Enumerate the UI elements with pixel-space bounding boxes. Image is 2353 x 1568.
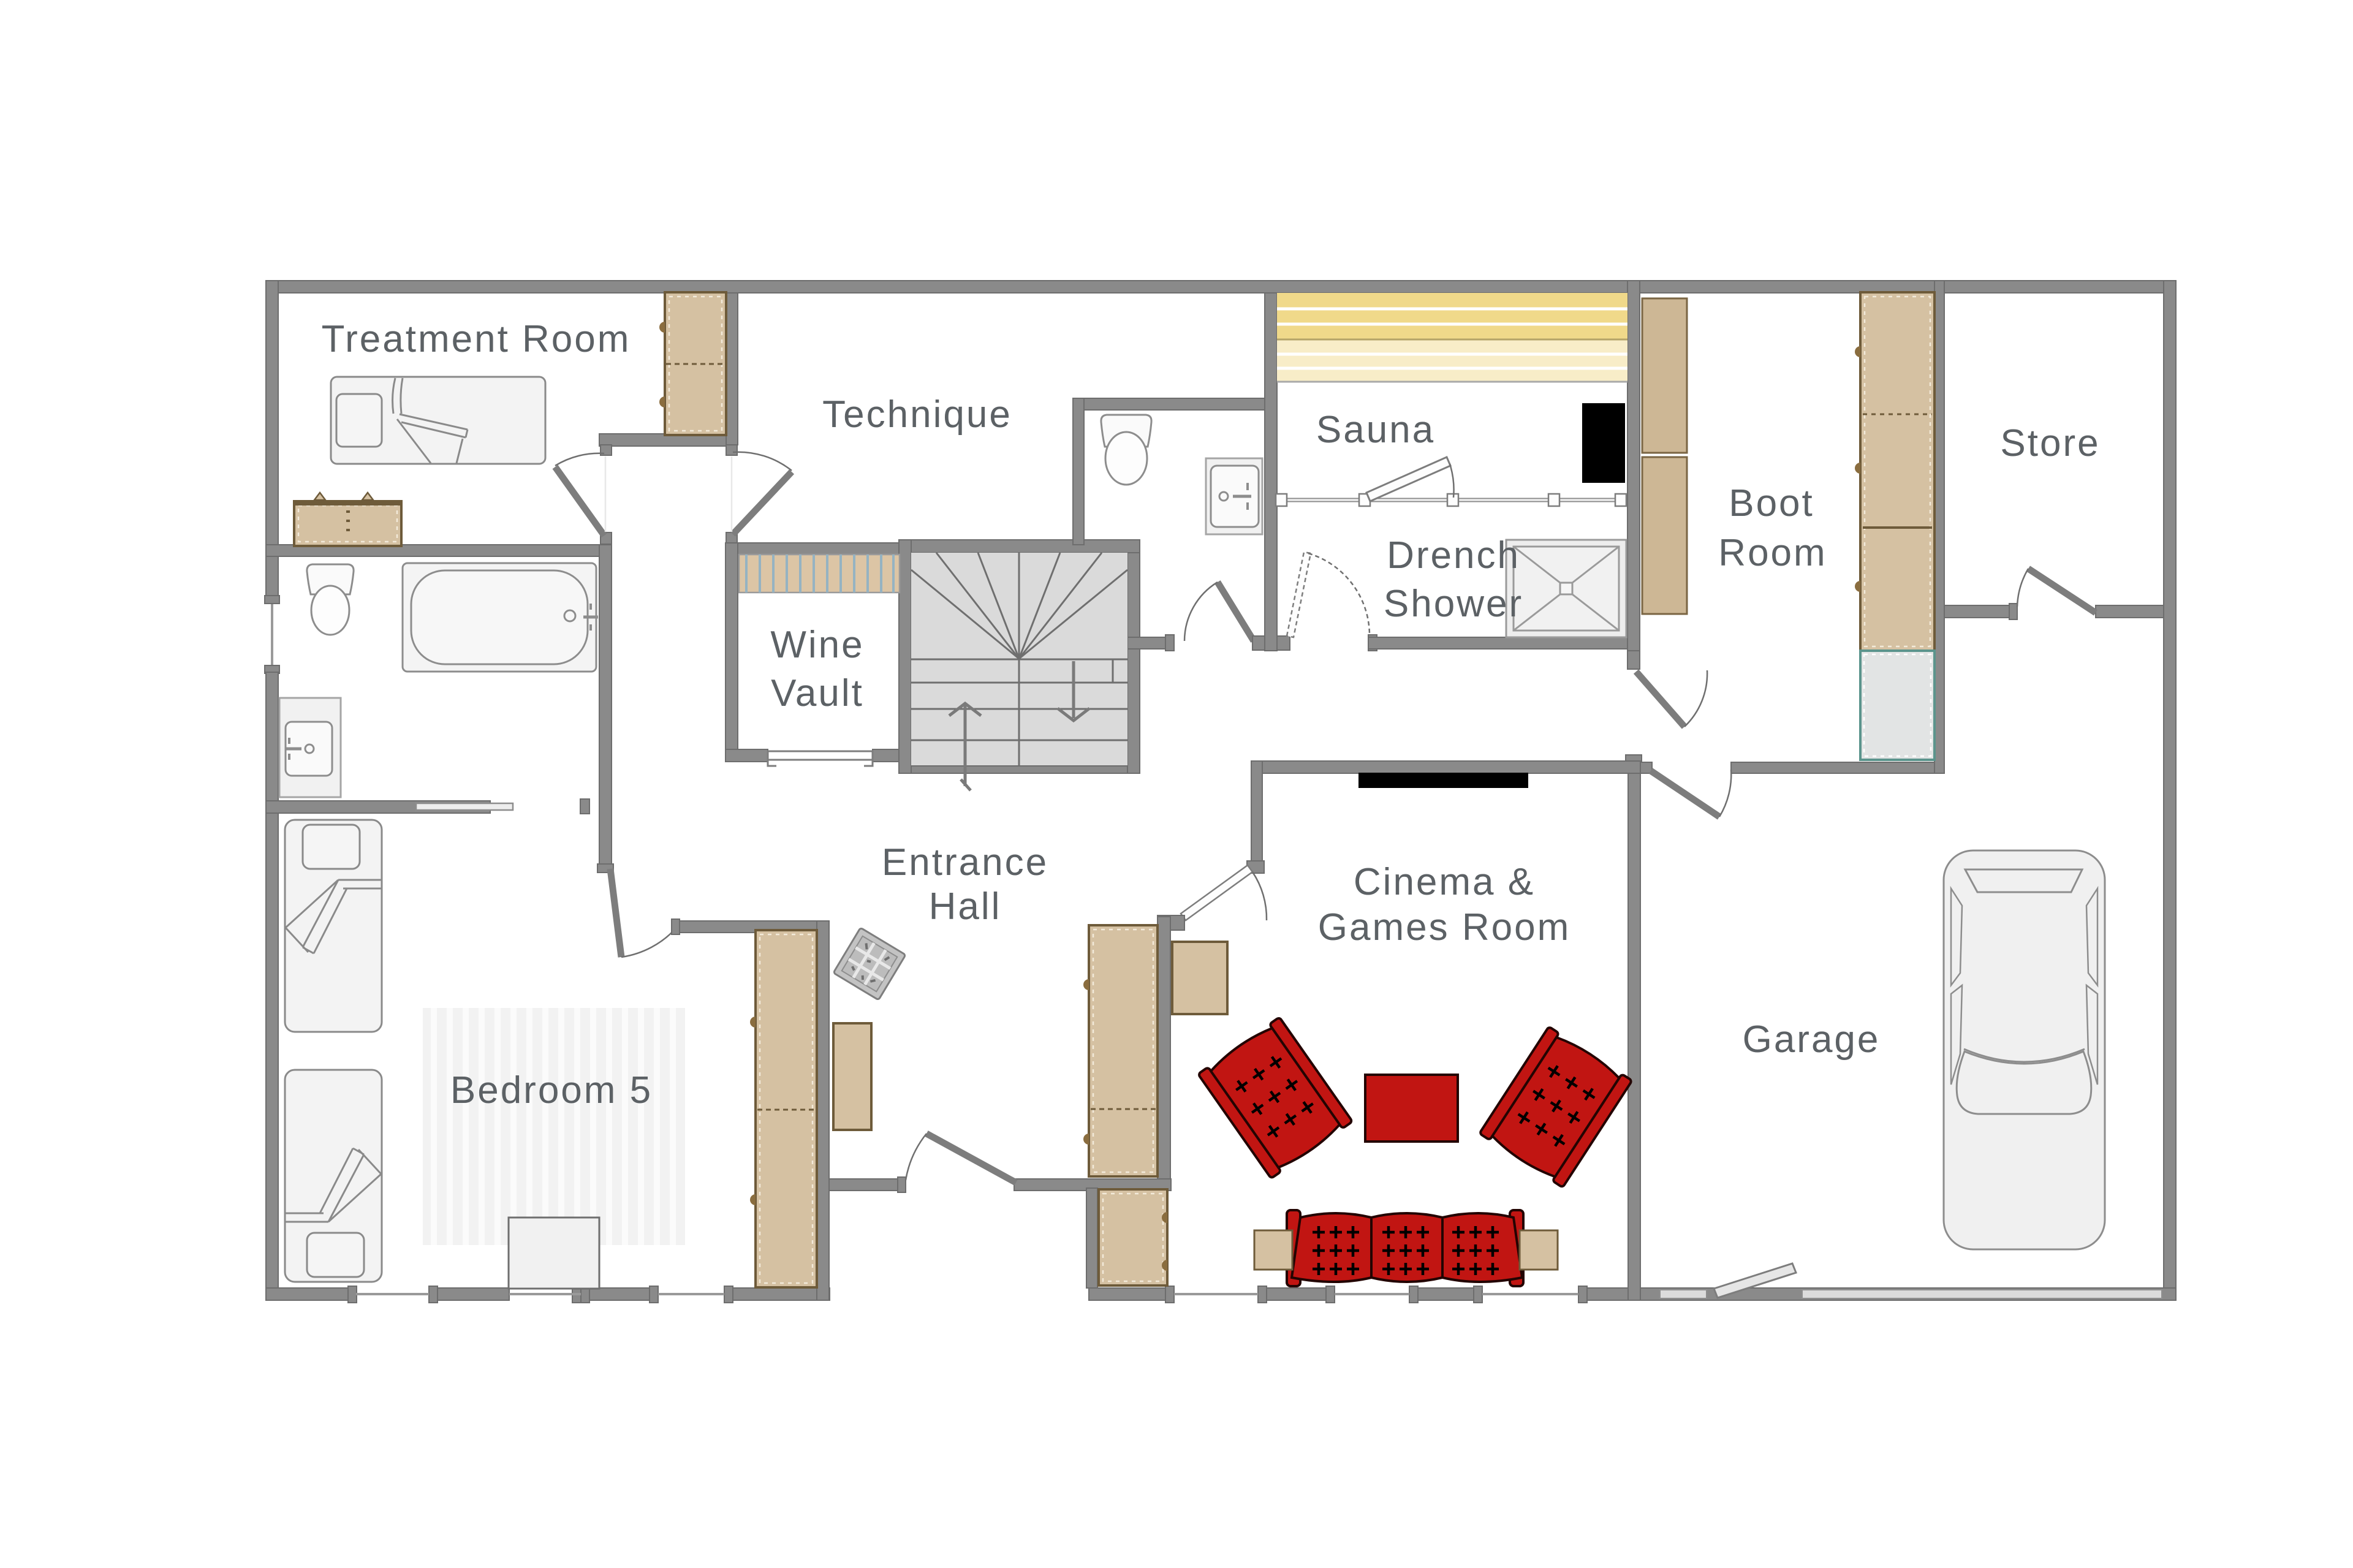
svg-text:Cinema &: Cinema & [1354,861,1535,903]
svg-text:Vault: Vault [771,672,864,714]
svg-text:Drench: Drench [1387,534,1520,577]
svg-text:Shower: Shower [1384,583,1523,625]
svg-text:Entrance: Entrance [882,841,1048,884]
svg-text:Games Room: Games Room [1318,906,1571,949]
svg-text:Wine: Wine [770,624,864,666]
svg-text:Garage: Garage [1743,1018,1881,1061]
svg-text:Boot: Boot [1729,482,1814,525]
svg-text:Treatment Room: Treatment Room [322,318,631,360]
svg-text:Sauna: Sauna [1316,409,1435,451]
svg-text:Technique: Technique [822,393,1012,436]
svg-text:Room: Room [1718,532,1827,574]
svg-text:Hall: Hall [929,885,1002,928]
svg-text:Bedroom 5: Bedroom 5 [450,1069,653,1112]
svg-text:Store: Store [2000,422,2100,464]
